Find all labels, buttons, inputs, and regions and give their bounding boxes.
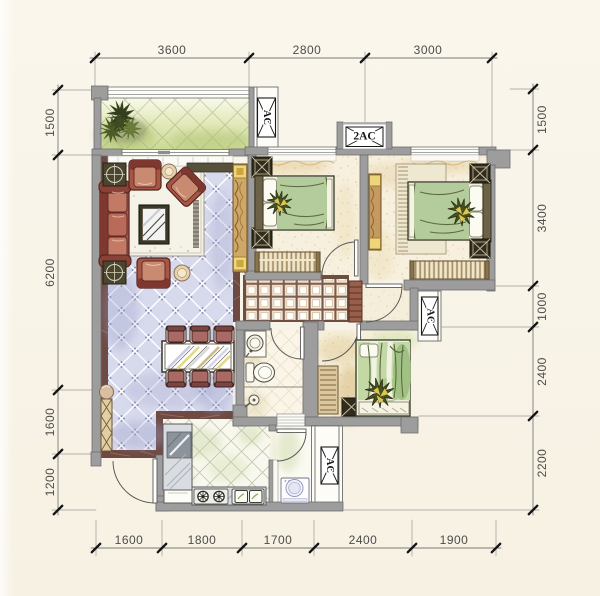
svg-text:2400: 2400 [349,533,378,547]
svg-text:2200: 2200 [535,449,549,478]
svg-text:1200: 1200 [43,468,57,497]
svg-text:AC: AC [261,110,272,125]
svg-text:3000: 3000 [414,43,443,57]
svg-text:1500: 1500 [535,105,549,134]
svg-text:1600: 1600 [43,408,57,437]
svg-text:AC: AC [324,458,335,473]
svg-text:1900: 1900 [440,533,469,547]
svg-text:1500: 1500 [43,108,57,137]
svg-text:1800: 1800 [188,533,217,547]
svg-text:1000: 1000 [535,292,549,321]
svg-text:2AC: 2AC [353,131,375,143]
svg-text:AC: AC [424,308,435,323]
svg-text:1600: 1600 [115,533,144,547]
svg-text:2800: 2800 [293,43,322,57]
svg-text:1700: 1700 [264,533,293,547]
svg-text:2400: 2400 [535,357,549,386]
svg-text:3400: 3400 [535,204,549,233]
svg-text:3600: 3600 [158,43,187,57]
svg-text:6200: 6200 [43,258,57,287]
